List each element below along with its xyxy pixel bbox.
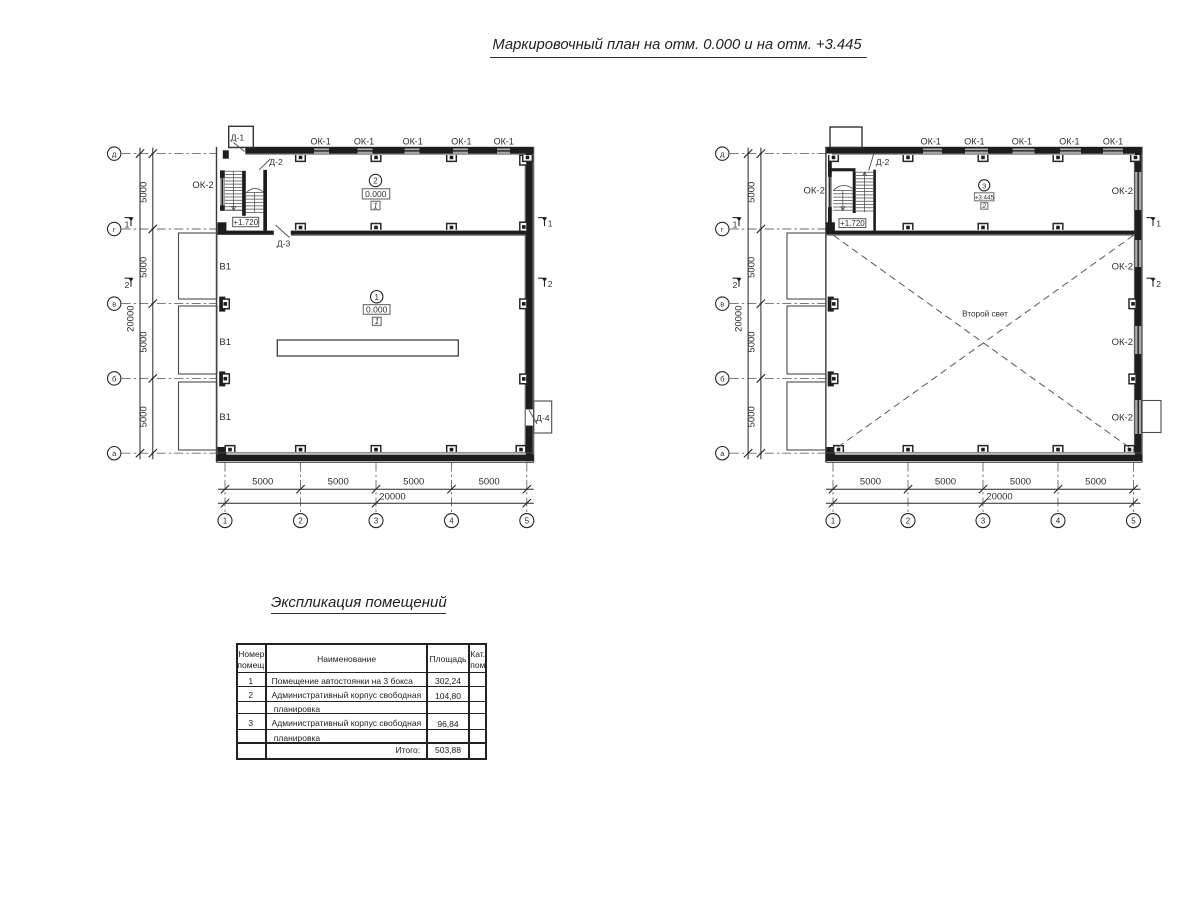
svg-text:5000: 5000 — [746, 406, 757, 427]
svg-text:5000: 5000 — [479, 476, 500, 487]
svg-text:а: а — [720, 449, 725, 458]
svg-text:4: 4 — [1056, 517, 1061, 526]
svg-text:2: 2 — [373, 177, 378, 186]
svg-text:ОК-2: ОК-2 — [1112, 337, 1133, 348]
svg-text:1: 1 — [125, 220, 130, 230]
svg-text:2: 2 — [298, 517, 303, 526]
svg-text:+1.720: +1.720 — [840, 219, 865, 228]
svg-text:2: 2 — [125, 280, 130, 290]
svg-text:5000: 5000 — [403, 476, 424, 487]
svg-text:2: 2 — [548, 279, 553, 289]
svg-text:В1: В1 — [219, 262, 231, 273]
svg-text:ОК-1: ОК-1 — [310, 136, 330, 146]
svg-text:в: в — [112, 300, 116, 309]
svg-text:5: 5 — [1131, 517, 1136, 526]
svg-text:5000: 5000 — [1085, 476, 1106, 487]
svg-text:2: 2 — [1156, 279, 1161, 289]
svg-text:3: 3 — [982, 181, 986, 190]
svg-text:1: 1 — [733, 220, 738, 230]
svg-text:5000: 5000 — [138, 406, 149, 427]
svg-text:4: 4 — [449, 517, 454, 526]
svg-text:Д-4: Д-4 — [536, 413, 550, 423]
svg-text:Д-3: Д-3 — [277, 239, 291, 249]
svg-text:3: 3 — [374, 517, 379, 526]
svg-text:Д-1: Д-1 — [231, 133, 245, 143]
svg-text:ОК-2: ОК-2 — [1112, 262, 1133, 273]
svg-text:ОК-1: ОК-1 — [403, 136, 423, 146]
svg-text:в: в — [720, 300, 724, 309]
svg-text:Д-2: Д-2 — [876, 157, 890, 167]
svg-text:ОК-1: ОК-1 — [1012, 136, 1032, 146]
svg-text:2: 2 — [906, 517, 911, 526]
svg-text:а: а — [112, 449, 117, 458]
svg-text:2: 2 — [981, 203, 986, 210]
svg-text:б: б — [112, 374, 116, 383]
svg-text:Д-2: Д-2 — [269, 157, 283, 167]
svg-text:+1.720: +1.720 — [233, 218, 258, 227]
svg-text:5000: 5000 — [935, 476, 956, 487]
svg-text:1: 1 — [548, 219, 553, 229]
svg-text:ОК-1: ОК-1 — [1103, 136, 1123, 146]
svg-text:5000: 5000 — [1010, 476, 1031, 487]
svg-text:0.000: 0.000 — [365, 189, 387, 199]
svg-text:5000: 5000 — [138, 331, 149, 352]
svg-text:г: г — [721, 225, 724, 234]
svg-text:г: г — [113, 225, 116, 234]
svg-text:ОК-1: ОК-1 — [451, 136, 471, 146]
svg-text:д: д — [720, 150, 725, 159]
svg-text:5000: 5000 — [252, 476, 273, 487]
svg-text:5000: 5000 — [746, 182, 757, 203]
svg-text:ОК-2: ОК-2 — [1112, 412, 1133, 423]
svg-text:1: 1 — [831, 517, 836, 526]
svg-text:20000: 20000 — [125, 305, 136, 331]
svg-text:20000: 20000 — [986, 492, 1012, 503]
svg-text:5000: 5000 — [746, 257, 757, 278]
svg-text:5000: 5000 — [328, 476, 349, 487]
svg-text:Второй свет: Второй свет — [962, 310, 1008, 319]
svg-text:ОК-1: ОК-1 — [494, 136, 514, 146]
svg-text:1: 1 — [373, 201, 377, 210]
svg-text:ОК-2: ОК-2 — [192, 180, 213, 191]
svg-text:ОК-1: ОК-1 — [964, 136, 984, 146]
svg-text:д: д — [112, 150, 117, 159]
svg-text:б: б — [720, 374, 724, 383]
svg-text:0.000: 0.000 — [366, 304, 388, 314]
svg-text:20000: 20000 — [734, 305, 745, 331]
svg-text:5000: 5000 — [860, 476, 881, 487]
svg-text:1: 1 — [1156, 219, 1161, 229]
svg-text:5: 5 — [525, 517, 530, 526]
svg-text:1: 1 — [375, 317, 379, 326]
svg-text:5000: 5000 — [138, 182, 149, 203]
svg-text:ОК-2: ОК-2 — [1112, 186, 1133, 197]
svg-text:ОК-2: ОК-2 — [804, 186, 825, 197]
svg-text:+3.445: +3.445 — [975, 194, 995, 201]
svg-text:В1: В1 — [219, 412, 231, 423]
svg-text:ОК-1: ОК-1 — [921, 136, 941, 146]
svg-text:5000: 5000 — [746, 331, 757, 352]
svg-text:В1: В1 — [219, 337, 231, 348]
svg-text:1: 1 — [374, 293, 379, 302]
svg-text:2: 2 — [733, 280, 738, 290]
svg-text:ОК-1: ОК-1 — [1059, 136, 1079, 146]
svg-text:20000: 20000 — [379, 492, 405, 503]
svg-text:1: 1 — [223, 517, 228, 526]
svg-text:3: 3 — [981, 517, 986, 526]
svg-text:ОК-1: ОК-1 — [354, 136, 374, 146]
svg-text:5000: 5000 — [138, 257, 149, 278]
